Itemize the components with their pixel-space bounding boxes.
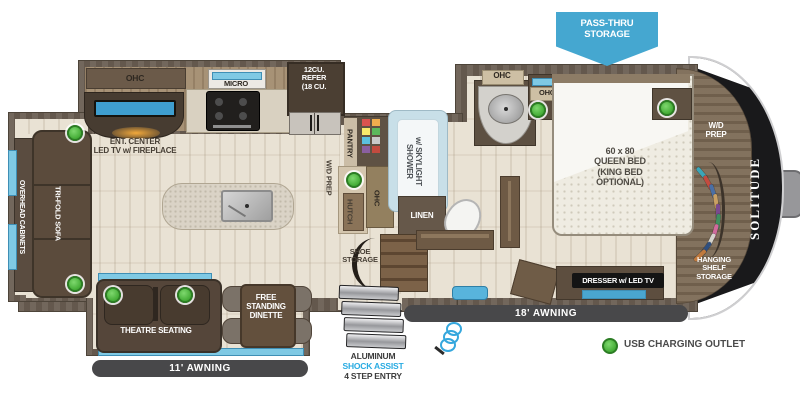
usb-outlet-dot	[67, 125, 83, 141]
sink-drain	[504, 107, 508, 111]
awning-left-label: 11' AWNING	[169, 363, 230, 374]
sofa-cushion-line	[34, 184, 90, 186]
window	[8, 150, 17, 196]
awning-right-label: 18' AWNING	[515, 308, 577, 319]
refer-label: 12CU. REFER (18 CU.	[289, 66, 339, 91]
wd-prep-mid-label: W/D PREP	[324, 150, 332, 206]
bed-headboard	[552, 74, 690, 83]
dresser-label: DRESSER w/ LED TV	[572, 277, 664, 285]
awning-right-bar: 18' AWNING	[404, 305, 688, 322]
pass-thru-label: PASS-THRU STORAGE	[556, 19, 658, 40]
wardrobe-panel	[500, 176, 520, 248]
usb-outlet-dot	[105, 287, 121, 303]
wd-prep-front-label: W/D PREP	[694, 122, 738, 140]
awning-left-bar: 11' AWNING	[92, 360, 308, 377]
fridge-doors	[289, 112, 341, 135]
pantry-item	[372, 137, 380, 144]
step-tread	[341, 301, 401, 317]
shoe-storage-label: SHOE STORAGE	[334, 248, 386, 265]
fridge-door-gap	[314, 113, 315, 134]
hutch-label: HUTCH	[345, 194, 353, 230]
pantry-item	[362, 146, 370, 153]
floorplan-canvas: OVERHEAD CABINETS TRI-FOLD SOFA OHC MICR…	[0, 0, 800, 400]
pantry-item	[372, 146, 380, 153]
burner	[239, 98, 247, 106]
queen-bed-label: 60 x 80 QUEEN BED (KING BED OPTIONAL)	[558, 146, 682, 187]
pantry-label: PANTRY	[345, 121, 353, 165]
pantry-item	[362, 119, 370, 126]
window	[8, 224, 17, 270]
pantry-item	[372, 128, 380, 135]
oven-handle	[213, 125, 251, 128]
usb-outlet-dot	[659, 100, 675, 116]
theatre-seating-label: THEATRE SEATING	[94, 327, 218, 336]
usb-outlet-dot	[346, 172, 362, 188]
pass-thru-callout: PASS-THRU STORAGE	[556, 12, 658, 66]
fridge-handle	[310, 115, 312, 131]
burner	[215, 98, 223, 106]
usb-legend-label: USB CHARGING OUTLET	[624, 339, 784, 350]
bench-top-line	[421, 234, 489, 238]
step-tread	[343, 317, 403, 333]
led-tv	[94, 100, 176, 117]
entry-steps	[333, 283, 411, 352]
pantry-item	[362, 137, 370, 144]
usb-outlet-dot	[530, 102, 546, 118]
hanging-shelf-label: HANGING SHELF STORAGE	[686, 256, 742, 281]
micro-label: MICRO	[210, 80, 262, 88]
linen-label: LINEN	[400, 212, 444, 221]
fridge-handle	[317, 115, 319, 131]
entry-label-line3: 4 STEP ENTRY	[318, 372, 428, 382]
step-tread	[339, 285, 399, 301]
dinette-label: FREE STANDING DINETTE	[230, 294, 302, 321]
dresser-tv-screen	[582, 290, 646, 299]
island-sink	[221, 190, 273, 222]
bath-ohc-label-1: OHC	[482, 72, 522, 81]
sofa-cushion-line	[34, 238, 90, 240]
step-tread	[346, 333, 406, 349]
vanity-sink	[488, 94, 524, 124]
ent-center-label: ENT. CENTER LED TV w/ FIREPLACE	[68, 138, 202, 156]
usb-legend-dot	[602, 338, 618, 354]
bedroom-bench	[416, 230, 494, 250]
mid-ohc-label: OHC	[372, 186, 380, 210]
wardrobe-line	[508, 181, 511, 241]
floor-vent	[452, 286, 488, 300]
brand-logo: SOLITUDE	[748, 146, 763, 250]
stove	[206, 91, 260, 131]
theatre-console	[153, 287, 158, 321]
shower-label: SHOWER w/ SKYLIGHT	[404, 126, 422, 196]
burner	[239, 112, 247, 120]
sink-drain	[245, 204, 249, 208]
usb-outlet-dot	[177, 287, 193, 303]
usb-outlet-dot	[67, 276, 83, 292]
pantry-item	[362, 128, 370, 135]
overhead-cabinets-label: OVERHEAD CABINETS	[17, 152, 25, 282]
pantry-item	[372, 119, 380, 126]
kitchen-ohc-label: OHC	[110, 74, 160, 84]
tri-fold-sofa-label: TRI-FOLD SOFA	[53, 158, 61, 268]
burner	[215, 112, 223, 120]
sink-faucet	[228, 205, 246, 217]
